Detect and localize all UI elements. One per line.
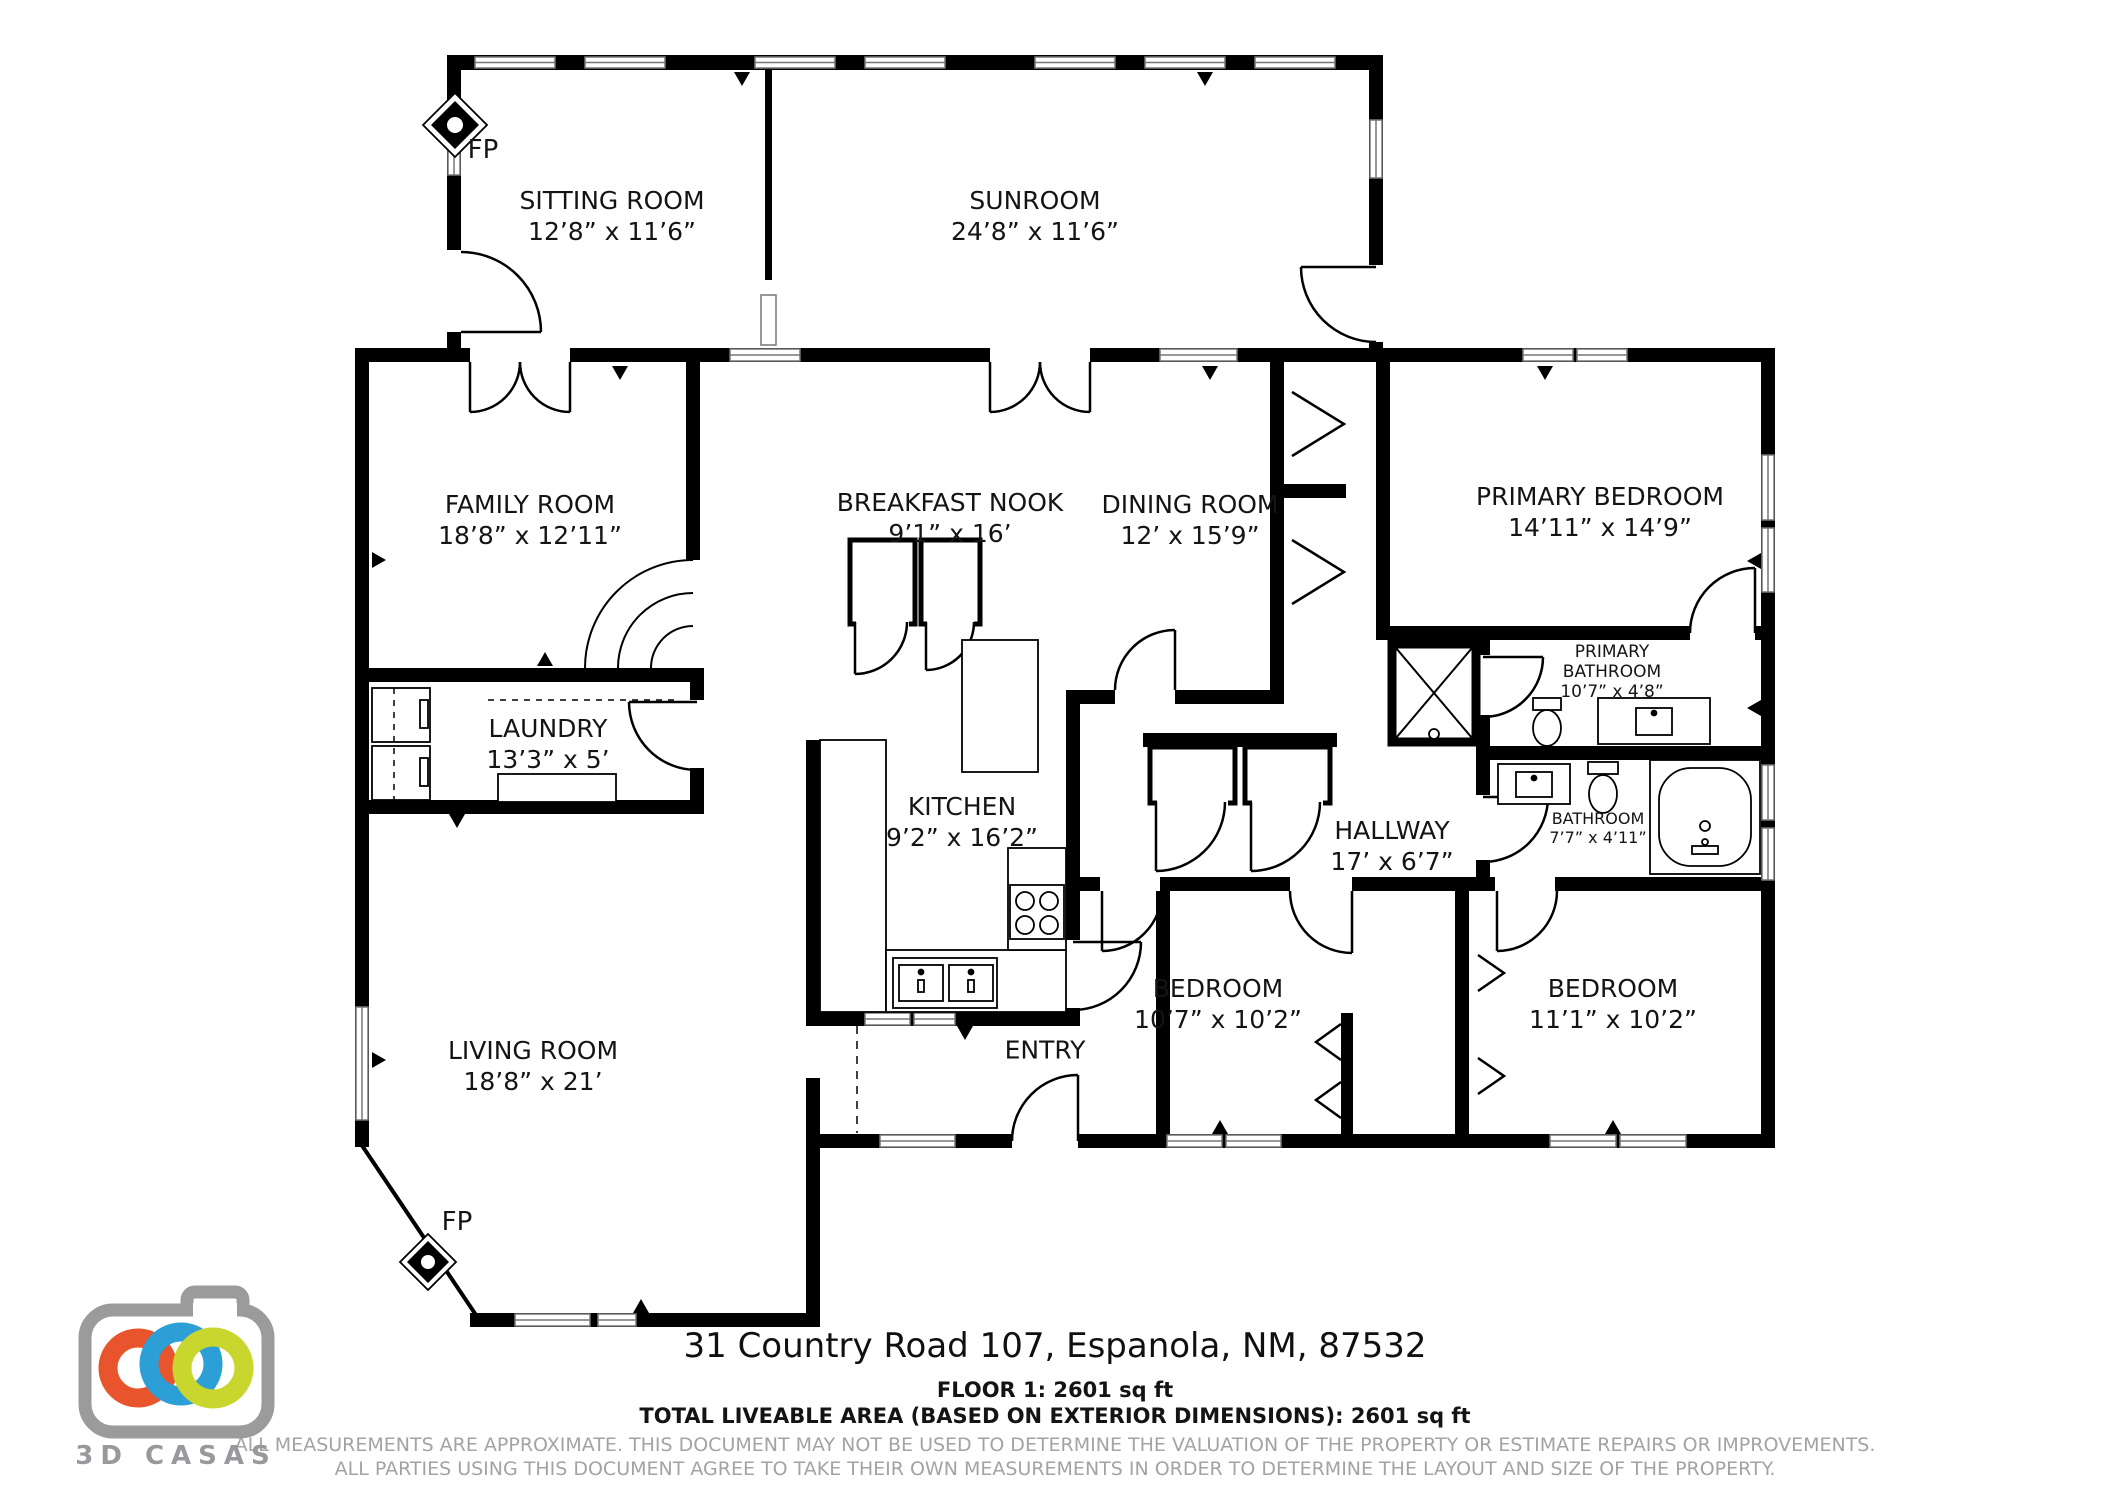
room-name: LAUNDRY xyxy=(489,714,608,743)
room-name: KITCHEN xyxy=(908,792,1016,821)
room-label-bathroom: BATHROOM 7’7” x 4’11” xyxy=(1549,809,1646,847)
room-dims: 12’ x 15’9” xyxy=(1101,520,1278,551)
stove-icon xyxy=(1010,885,1064,939)
room-label-kitchen: KITCHEN 9’2” x 16’2” xyxy=(886,791,1038,853)
room-name: BREAKFAST NOOK xyxy=(837,488,1064,517)
room-name: BATHROOM xyxy=(1552,809,1645,828)
room-dims: 24’8” x 11’6” xyxy=(951,216,1119,247)
disclaimer-line-2: ALL PARTIES USING THIS DOCUMENT AGREE TO… xyxy=(335,1458,1776,1480)
total-area-line: TOTAL LIVEABLE AREA (BASED ON EXTERIOR D… xyxy=(639,1404,1470,1428)
fireplace-icon-living xyxy=(400,1234,456,1290)
room-name: BEDROOM xyxy=(1153,974,1284,1003)
room-label-sunroom: SUNROOM 24’8” x 11’6” xyxy=(951,185,1119,247)
bathroom-sink-icon xyxy=(1498,764,1570,804)
room-label-hallway: HALLWAY 17’ x 6’7” xyxy=(1330,815,1453,877)
fireplace-label-sitting: FP xyxy=(468,135,499,165)
room-label-bedroom-1: BEDROOM 10’7” x 10’2” xyxy=(1134,973,1302,1035)
room-label-sitting-room: SITTING ROOM 12’8” x 11’6” xyxy=(519,185,704,247)
room-dims: 10’7” x 10’2” xyxy=(1134,1004,1302,1035)
room-name: LIVING ROOM xyxy=(448,1036,618,1065)
laundry-counter xyxy=(498,774,616,802)
room-name: ENTRY xyxy=(1005,1036,1086,1065)
room-name: SITTING ROOM xyxy=(519,186,704,215)
room-dims: 10’7” x 4’8” xyxy=(1527,682,1697,702)
room-label-bedroom-2: BEDROOM 11’1” x 10’2” xyxy=(1529,973,1697,1035)
room-label-family-room: FAMILY ROOM 18’8” x 12’11” xyxy=(438,489,622,551)
shower-icon xyxy=(1392,644,1476,742)
room-dims: 18’8” x 12’11” xyxy=(438,520,622,551)
room-dims: 9’2” x 16’2” xyxy=(886,822,1038,853)
room-dims: 7’7” x 4’11” xyxy=(1549,828,1646,847)
primary-bath-toilet-icon xyxy=(1533,698,1561,746)
room-dims: 13’3” x 5’ xyxy=(486,744,609,775)
fireplace-label-living: FP xyxy=(442,1207,473,1237)
washer-dryer-icons xyxy=(372,688,430,800)
logo-wordmark: 3D CASAS xyxy=(75,1441,277,1471)
room-name: DINING ROOM xyxy=(1101,490,1278,519)
room-label-living-room: LIVING ROOM 18’8” x 21’ xyxy=(448,1035,618,1097)
room-name: PRIMARY BATHROOM xyxy=(1563,642,1661,682)
room-label-entry: ENTRY xyxy=(1005,1035,1086,1066)
floorplan-page: SITTING ROOM 12’8” x 11’6” SUNROOM 24’8”… xyxy=(0,0,2110,1492)
address-title: 31 Country Road 107, Espanola, NM, 87532 xyxy=(684,1326,1427,1366)
room-dims: 12’8” x 11’6” xyxy=(519,216,704,247)
room-label-laundry: LAUNDRY 13’3” x 5’ xyxy=(486,713,609,775)
pantry-closets xyxy=(850,540,980,674)
room-name: PRIMARY BEDROOM xyxy=(1476,482,1724,511)
room-label-primary-bathroom: PRIMARY BATHROOM 10’7” x 4’8” xyxy=(1527,642,1697,702)
hallway-closets xyxy=(1150,747,1330,871)
room-dims: 11’1” x 10’2” xyxy=(1529,1004,1697,1035)
room-label-primary-bedroom: PRIMARY BEDROOM 14’11” x 14’9” xyxy=(1475,481,1725,543)
room-label-breakfast-nook: BREAKFAST NOOK 9’1” x 16’ xyxy=(837,487,1064,549)
logo-camera-icon xyxy=(85,1292,268,1432)
arch-opening xyxy=(585,560,693,668)
bathtub-icon xyxy=(1650,760,1760,874)
room-label-dining-room: DINING ROOM 12’ x 15’9” xyxy=(1101,489,1278,551)
disclaimer-line-1: ALL MEASUREMENTS ARE APPROXIMATE. THIS D… xyxy=(235,1434,1876,1456)
room-name: HALLWAY xyxy=(1334,816,1449,845)
room-dims: 14’11” x 14’9” xyxy=(1475,512,1725,543)
room-dims: 18’8” x 21’ xyxy=(448,1066,618,1097)
room-name: BEDROOM xyxy=(1548,974,1679,1003)
kitchen-sink-icon xyxy=(893,958,997,1008)
room-name: FAMILY ROOM xyxy=(445,490,615,519)
kitchen-island xyxy=(962,640,1038,772)
floor-area-line: FLOOR 1: 2601 sq ft xyxy=(937,1378,1173,1402)
bathroom-toilet-icon xyxy=(1588,762,1618,813)
primary-bath-sink-icon xyxy=(1598,698,1710,744)
room-name: SUNROOM xyxy=(969,186,1100,215)
room-dims: 9’1” x 16’ xyxy=(837,518,1064,549)
room-dims: 17’ x 6’7” xyxy=(1330,846,1453,877)
